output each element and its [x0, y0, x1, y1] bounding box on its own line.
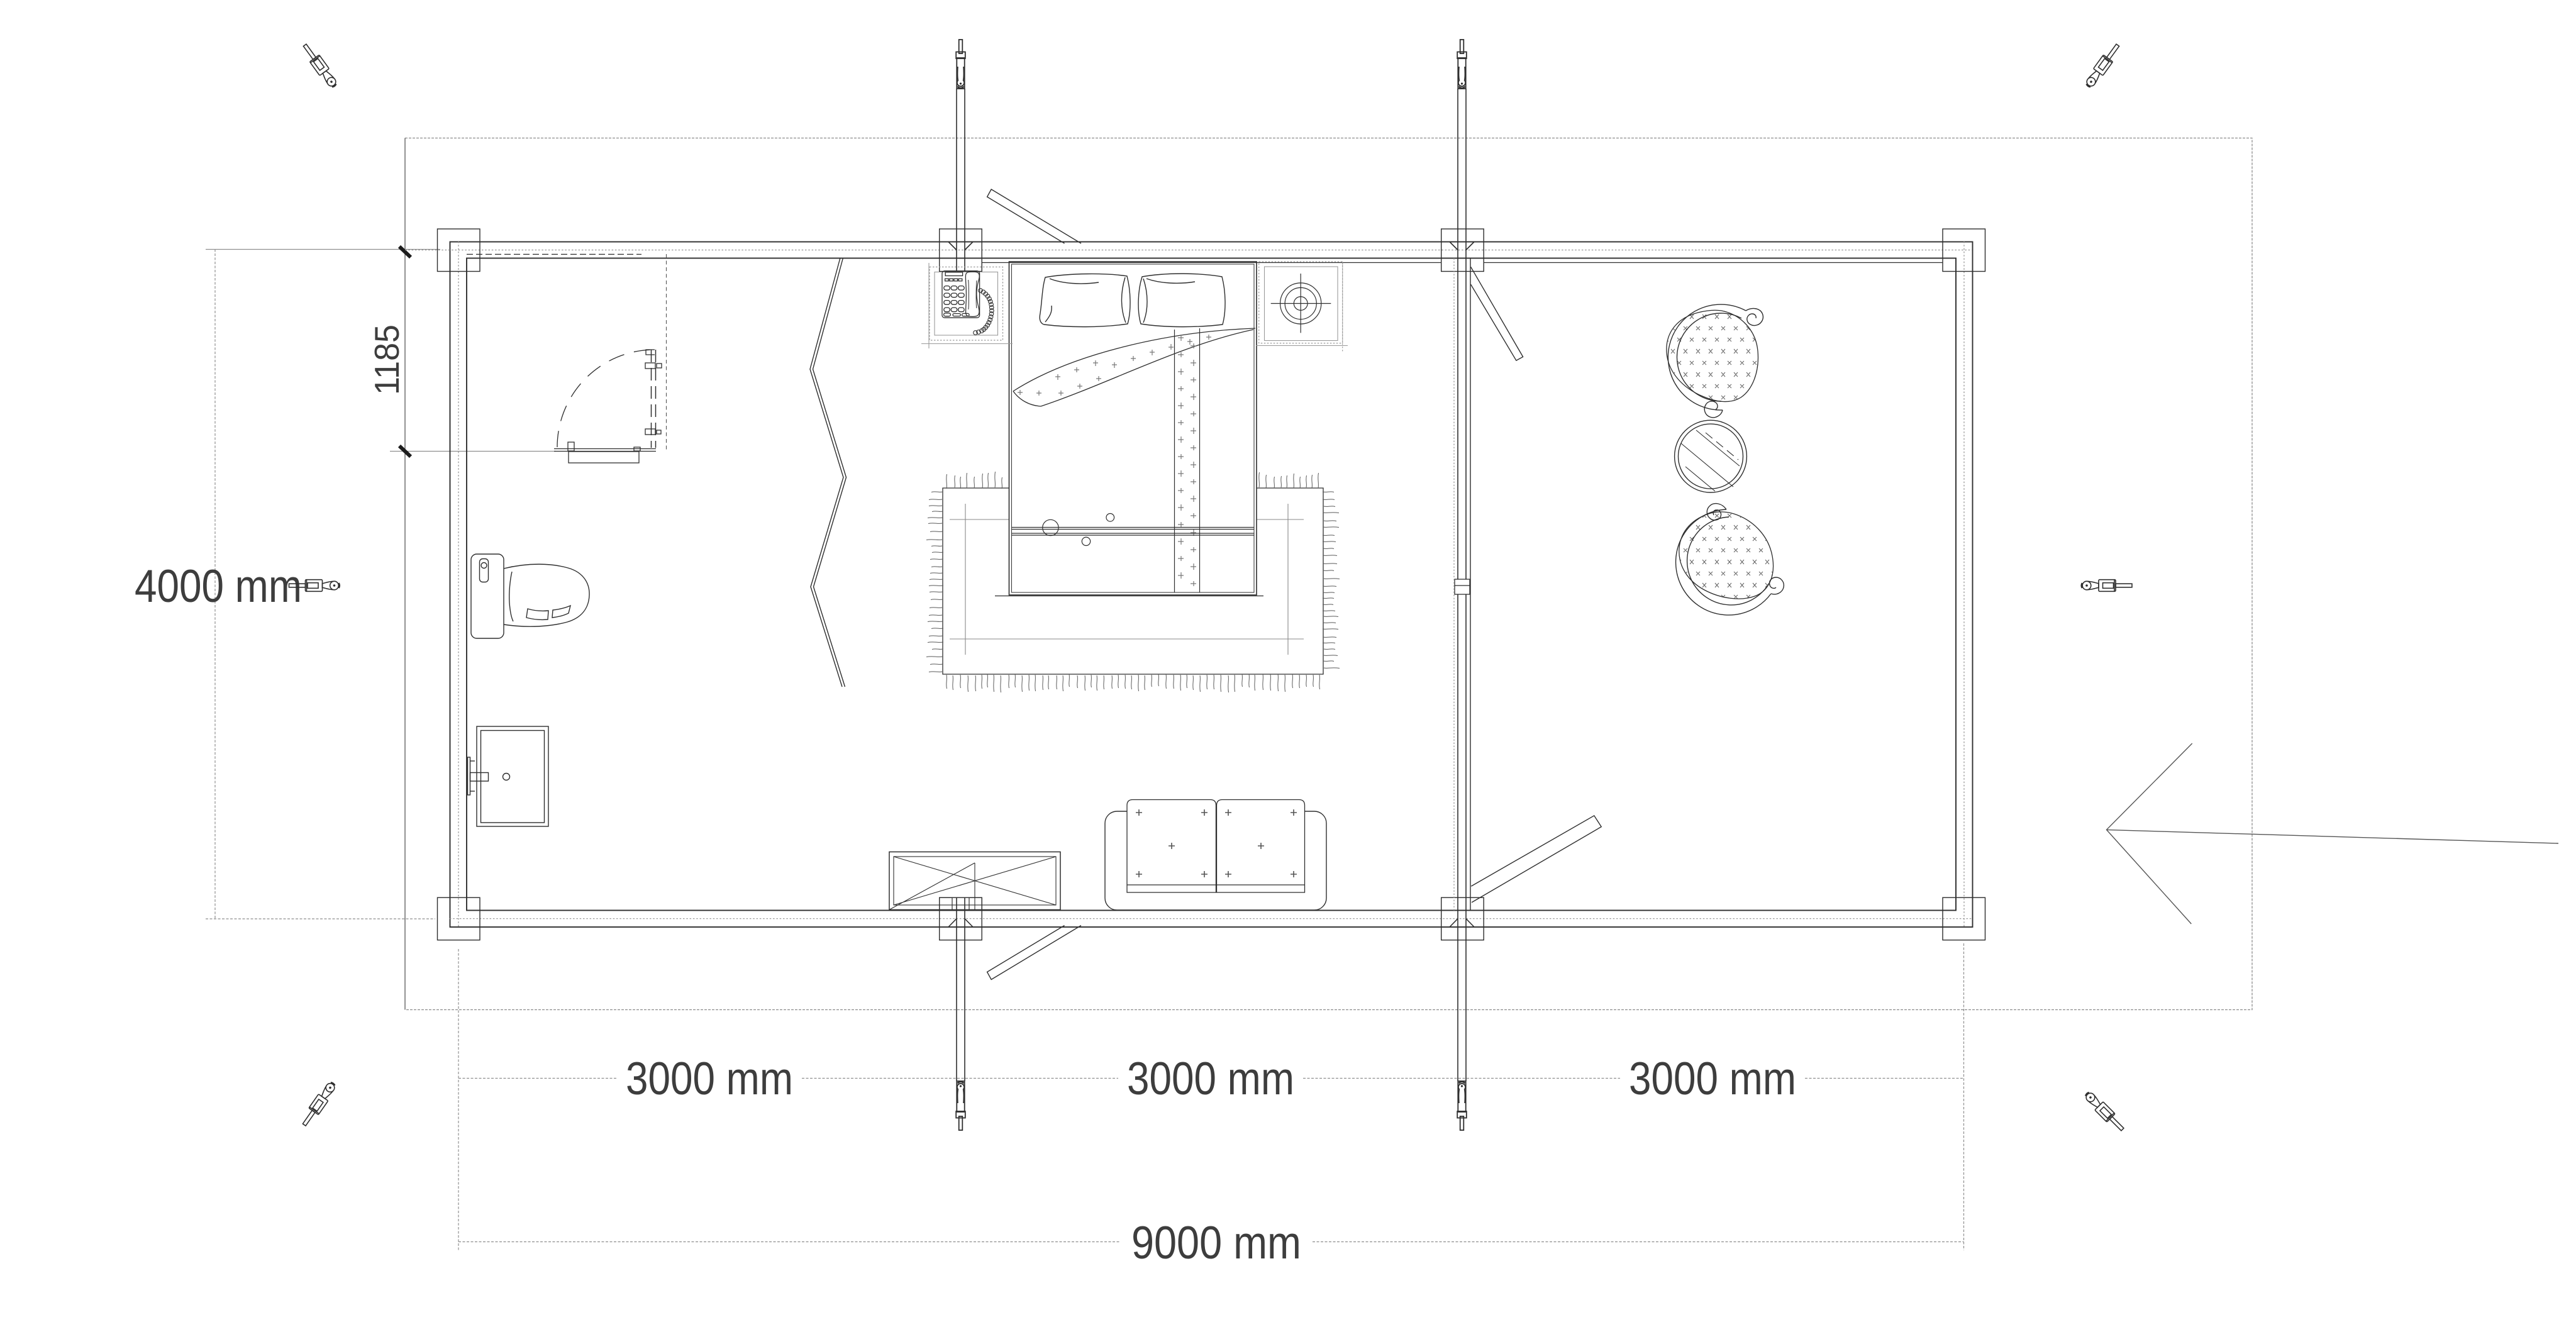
svg-text:3000 mm: 3000 mm: [1629, 1053, 1796, 1104]
svg-text:1185: 1185: [367, 325, 406, 395]
svg-text:9000 mm: 9000 mm: [1131, 1218, 1301, 1269]
svg-text:3000 mm: 3000 mm: [626, 1053, 793, 1104]
svg-text:3000 mm: 3000 mm: [1127, 1053, 1294, 1104]
svg-text:4000 mm: 4000 mm: [135, 561, 302, 612]
